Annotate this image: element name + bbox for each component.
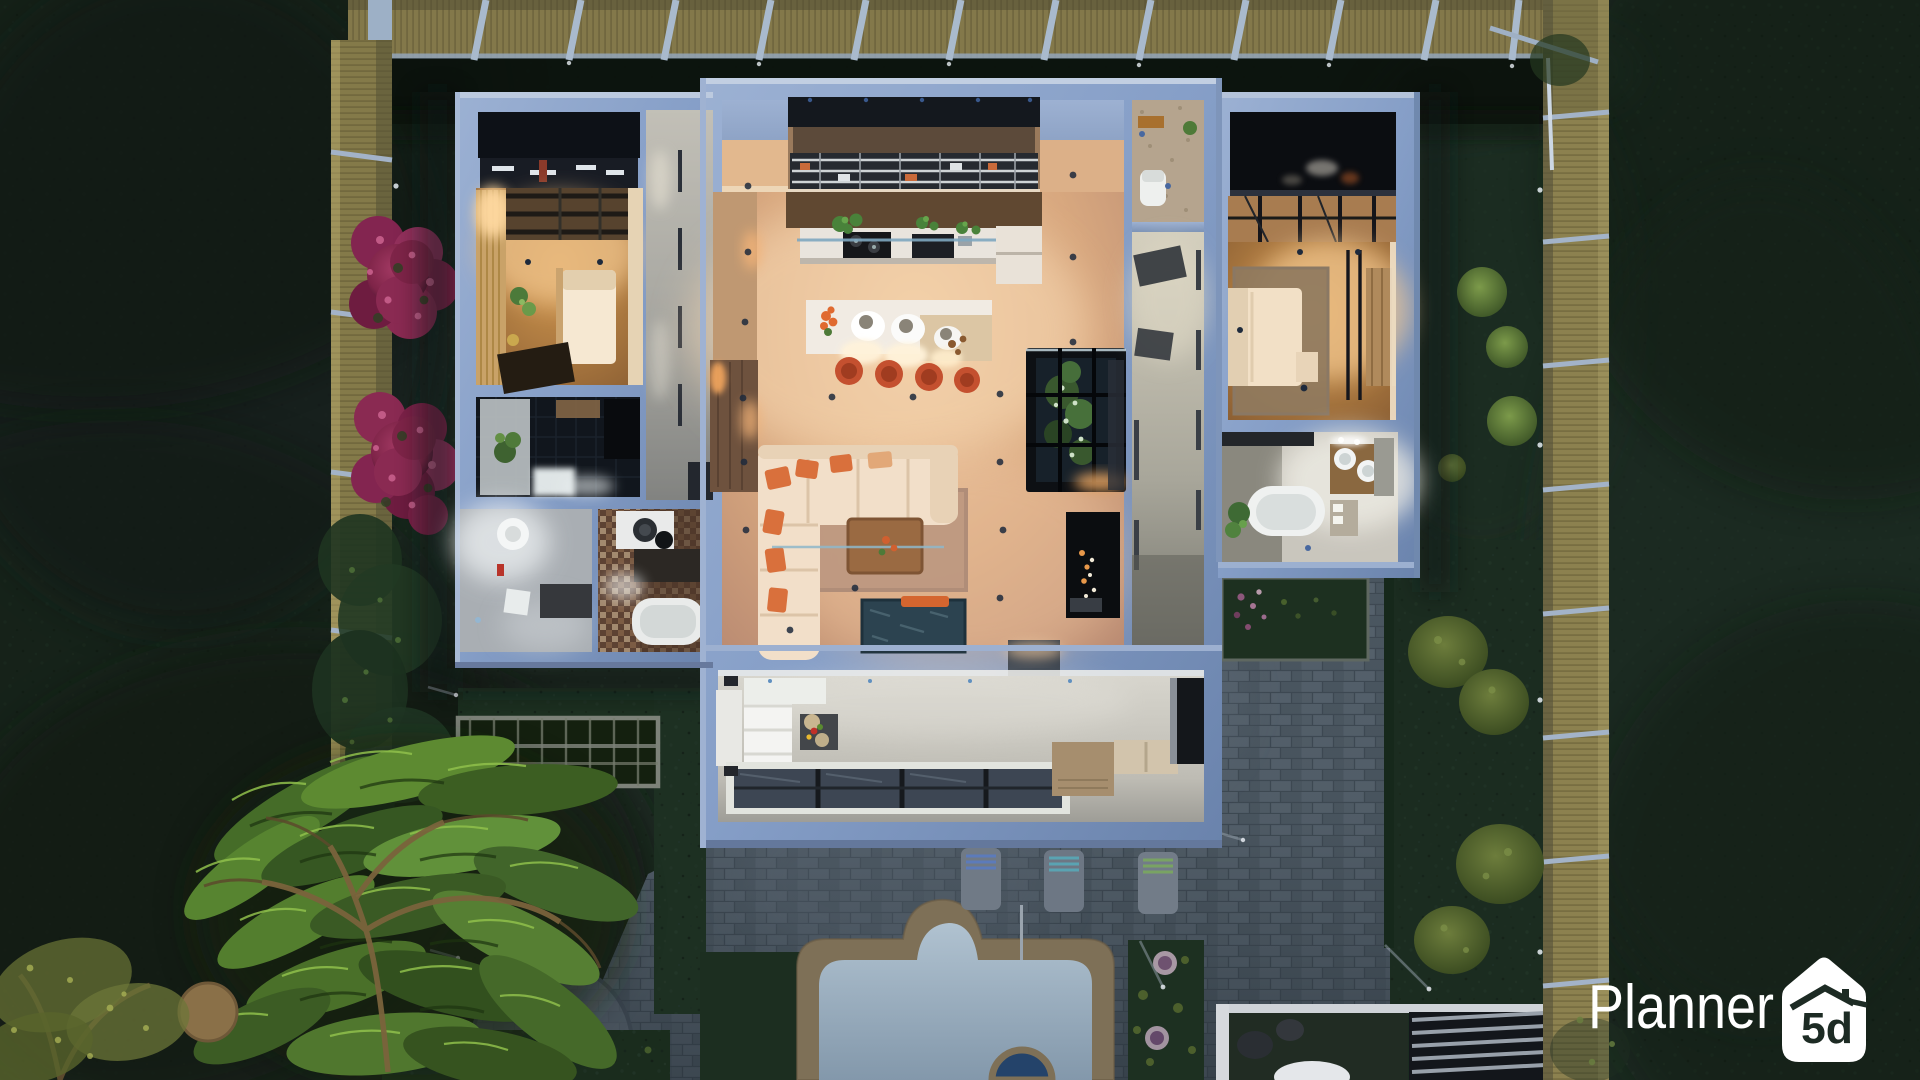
svg-text:5d: 5d xyxy=(1801,1004,1853,1053)
svg-text:Planner: Planner xyxy=(1588,973,1774,1042)
